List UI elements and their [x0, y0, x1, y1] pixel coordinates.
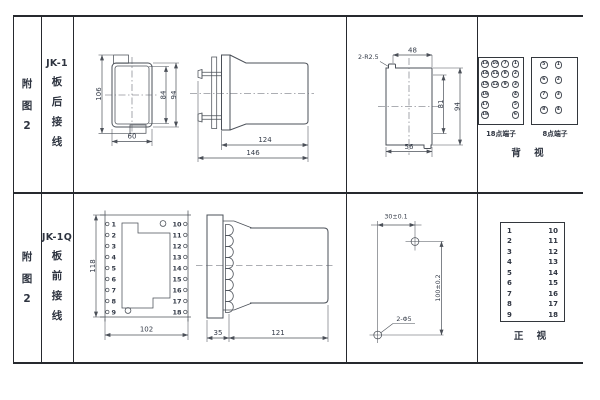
- terminal-bump: [226, 236, 234, 247]
- terminal-6: 6: [540, 76, 548, 84]
- jk1q-front-view-drawing: 123456789101112131415161718 118 102: [85, 200, 200, 345]
- terminal-label-4: 4: [112, 253, 117, 261]
- dim-124: 124: [222, 126, 309, 150]
- figure-char: 图: [22, 271, 33, 286]
- terminal-screw-5: [106, 266, 109, 269]
- svg-text:2-R2.5: 2-R2.5: [358, 54, 379, 61]
- terminal-screw-10: [184, 222, 187, 225]
- top-terminal-block: [114, 55, 129, 63]
- front-table-row: 615: [507, 278, 558, 288]
- terminal-screw-13: [184, 255, 187, 258]
- terminal-screw-14: [184, 266, 187, 269]
- terminal-9: 9: [507, 310, 512, 320]
- terminal-screw-6: [106, 277, 109, 280]
- svg-text:100±0.2: 100±0.2: [435, 274, 442, 301]
- table-divider-2: [73, 15, 74, 364]
- terminal-label-11: 11: [172, 231, 182, 239]
- terminal-label-5: 5: [112, 264, 117, 272]
- terminal-screw-9: [106, 310, 109, 313]
- front-table-row: 716: [507, 289, 558, 299]
- svg-text:81: 81: [437, 100, 445, 109]
- terminal-bump: [226, 258, 234, 269]
- terminal-bump: [226, 225, 234, 236]
- svg-text:94: 94: [170, 90, 178, 99]
- table-divider-3: [346, 15, 347, 364]
- figure-char: 2: [23, 293, 30, 305]
- svg-text:106: 106: [95, 87, 103, 101]
- terminal-screw-15: [184, 277, 187, 280]
- jk1-side-view-drawing: 124 146: [190, 45, 322, 170]
- terminal-13: 13: [548, 257, 558, 267]
- table-border-middle: [13, 192, 583, 194]
- svg-text:146: 146: [246, 149, 260, 157]
- terminal-bump: [226, 280, 234, 291]
- row2-model-label: JK-1Q 板 前 接 线: [41, 192, 73, 362]
- terminal-label-8: 8: [112, 297, 117, 305]
- terminal-8: 8: [507, 299, 512, 309]
- terminal-label-1: 1: [112, 220, 117, 228]
- figure-char: 附: [22, 249, 33, 264]
- wiring-char: 线: [52, 134, 63, 149]
- terminal-block-8-label: 8点端子: [530, 128, 580, 138]
- terminal-15: 15: [548, 278, 558, 288]
- terminal-screw-3: [106, 244, 109, 247]
- front-table-row: 918: [507, 310, 558, 320]
- terminal-grid-8: 51627384: [532, 58, 577, 121]
- dim-118: 118: [89, 215, 104, 317]
- terminal-label-3: 3: [112, 242, 117, 250]
- relay-flange: [222, 55, 231, 130]
- terminal-17: 17: [481, 101, 489, 109]
- mounting-hole-bottom: [125, 308, 131, 314]
- terminal-3: 3: [512, 81, 520, 89]
- mounting-hole-top: [160, 221, 166, 227]
- terminal-2: 2: [507, 236, 512, 246]
- svg-text:84: 84: [160, 90, 168, 99]
- terminal-15: 15: [481, 81, 489, 89]
- svg-text:102: 102: [140, 326, 153, 334]
- terminal-18: 18: [548, 310, 558, 320]
- terminal-bump: [226, 247, 234, 258]
- figure-char: 2: [23, 120, 30, 132]
- row1-figure-label: 附 图 2: [13, 15, 41, 192]
- svg-text:94: 94: [454, 102, 462, 111]
- terminal-5: 5: [540, 61, 548, 69]
- panel-cutout-drawing: 2-R2.5 48 81 94 56: [350, 45, 477, 170]
- relay-outline: [122, 223, 170, 308]
- terminal-14: 14: [548, 268, 558, 278]
- terminal-screw-2: [106, 233, 109, 236]
- front-table-row: 110: [507, 226, 558, 236]
- terminal-6: 6: [507, 278, 512, 288]
- terminal-label-12: 12: [172, 242, 181, 250]
- terminal-3: 3: [555, 91, 563, 99]
- terminal-screw-8: [106, 299, 109, 302]
- dim-102: 102: [105, 319, 188, 340]
- dim-81: 81: [433, 75, 447, 134]
- terminal-screw-1: [106, 222, 109, 225]
- terminal-16: 16: [481, 91, 489, 99]
- terminal-label-7: 7: [112, 286, 117, 294]
- front-table-row: 211: [507, 236, 558, 246]
- svg-text:60: 60: [128, 133, 137, 141]
- terminal-2: 2: [512, 70, 520, 78]
- terminal-1: 1: [555, 61, 563, 69]
- terminal-7: 7: [507, 289, 512, 299]
- svg-text:35: 35: [214, 329, 223, 337]
- dim-48: 48: [393, 47, 432, 68]
- terminal-block-18: 131071141182151293164175186: [478, 57, 524, 125]
- table-border-bottom: [13, 362, 583, 364]
- terminal-7: 7: [540, 91, 548, 99]
- row1-model-label: JK-1 板 后 接 线: [41, 15, 73, 192]
- drilling-plan-drawing: 30±0.1 100±0.2 2-Φ5: [350, 200, 477, 345]
- terminal-1: 1: [507, 226, 512, 236]
- terminal-bump: [226, 269, 234, 280]
- terminal-1: 1: [512, 60, 520, 68]
- terminal-label-18: 18: [172, 308, 182, 316]
- front-terminal-rows: 110211312413514615716817918: [501, 223, 564, 323]
- figure-char: 附: [22, 76, 33, 91]
- front-terminal-table: 110211312413514615716817918: [500, 222, 565, 322]
- terminal-screw-16: [184, 288, 187, 291]
- terminal-10: 10: [491, 60, 499, 68]
- svg-text:121: 121: [271, 329, 284, 337]
- wiring-char: 接: [52, 114, 63, 129]
- terminal-bumps: [223, 221, 234, 313]
- jk1q-side-view-drawing: 35 121: [200, 200, 345, 345]
- terminal-3: 3: [507, 247, 512, 257]
- terminal-screw-18: [184, 310, 187, 313]
- terminal-9: 9: [501, 81, 509, 89]
- terminal-17: 17: [548, 299, 558, 309]
- terminal-block-8: 51627384: [531, 57, 578, 125]
- hole-top: [406, 238, 444, 246]
- table-border-top: [13, 15, 583, 17]
- figure-char: 图: [22, 98, 33, 113]
- terminal-12: 12: [548, 247, 558, 257]
- radius-callout: 2-R2.5: [358, 54, 389, 67]
- jk1-back-view-drawing: 106 84 94 60: [85, 45, 195, 170]
- front-view-terminals: 123456789101112131415161718: [106, 220, 187, 316]
- svg-text:118: 118: [89, 259, 97, 272]
- terminal-bump: [226, 291, 234, 302]
- terminal-11: 11: [548, 236, 558, 246]
- terminal-label-6: 6: [112, 275, 117, 283]
- centerlines: [105, 57, 159, 133]
- wiring-char: 板: [52, 74, 63, 89]
- front-view-label: 正 视: [496, 328, 569, 342]
- svg-text:48: 48: [408, 47, 417, 55]
- svg-text:124: 124: [258, 136, 272, 144]
- terminal-14: 14: [481, 70, 489, 78]
- wiring-char: 板: [52, 248, 63, 263]
- rear-view-label: 背 视: [477, 145, 583, 159]
- mounting-screw-top: [198, 70, 222, 79]
- terminal-screw-11: [184, 233, 187, 236]
- svg-text:30±0.1: 30±0.1: [384, 214, 407, 221]
- front-table-row: 413: [507, 257, 558, 267]
- front-table-row: 514: [507, 268, 558, 278]
- terminal-8: 8: [501, 70, 509, 78]
- terminal-label-17: 17: [172, 297, 181, 305]
- wiring-char: 前: [52, 268, 63, 283]
- wiring-char: 接: [52, 288, 63, 303]
- terminal-screw-12: [184, 244, 187, 247]
- terminal-label-2: 2: [112, 231, 117, 239]
- model-name: JK-1: [46, 58, 68, 69]
- terminal-10: 10: [548, 226, 558, 236]
- terminal-18: 18: [481, 111, 489, 119]
- terminal-label-15: 15: [172, 275, 182, 283]
- terminal-label-14: 14: [172, 264, 182, 272]
- terminal-grid-18: 131071141182151293164175186: [479, 58, 523, 122]
- centerlines: [378, 58, 440, 155]
- terminal-7: 7: [501, 60, 509, 68]
- terminal-label-16: 16: [172, 286, 182, 294]
- terminal-block-18-label: 18点端子: [476, 128, 526, 138]
- terminal-screw-4: [106, 255, 109, 258]
- mounting-screw-bottom: [198, 113, 222, 122]
- svg-text:56: 56: [405, 143, 414, 151]
- terminal-11: 11: [491, 70, 499, 78]
- holes-callout: 2-Φ5: [381, 316, 416, 333]
- front-table-row: 817: [507, 299, 558, 309]
- relay-body: [230, 55, 308, 130]
- terminal-12: 12: [491, 81, 499, 89]
- terminal-4: 4: [507, 257, 512, 267]
- terminal-bump: [226, 302, 234, 313]
- terminal-16: 16: [548, 289, 558, 299]
- terminal-2: 2: [555, 76, 563, 84]
- dim-146: 146: [198, 81, 308, 162]
- terminal-label-9: 9: [112, 308, 117, 316]
- wiring-char: 后: [52, 94, 63, 109]
- terminal-label-13: 13: [172, 253, 181, 261]
- terminal-screw-17: [184, 299, 187, 302]
- front-flange: [207, 215, 223, 318]
- terminal-13: 13: [481, 60, 489, 68]
- mounting-panel: [212, 57, 217, 129]
- wiring-char: 线: [52, 308, 63, 323]
- terminal-6: 6: [512, 111, 520, 119]
- terminal-screw-7: [106, 288, 109, 291]
- row2-figure-label: 附 图 2: [13, 192, 41, 362]
- hole-bottom: [370, 331, 444, 339]
- svg-text:2-Φ5: 2-Φ5: [396, 316, 411, 323]
- terminal-8: 8: [540, 106, 548, 114]
- front-table-row: 312: [507, 247, 558, 257]
- model-name: JK-1Q: [42, 232, 72, 243]
- terminal-4: 4: [512, 91, 520, 99]
- dim-100: 100±0.2: [435, 242, 442, 336]
- terminal-5: 5: [507, 268, 512, 278]
- dim-121: 121: [229, 305, 328, 342]
- terminal-5: 5: [512, 101, 520, 109]
- terminal-4: 4: [555, 106, 563, 114]
- terminal-label-10: 10: [172, 220, 182, 228]
